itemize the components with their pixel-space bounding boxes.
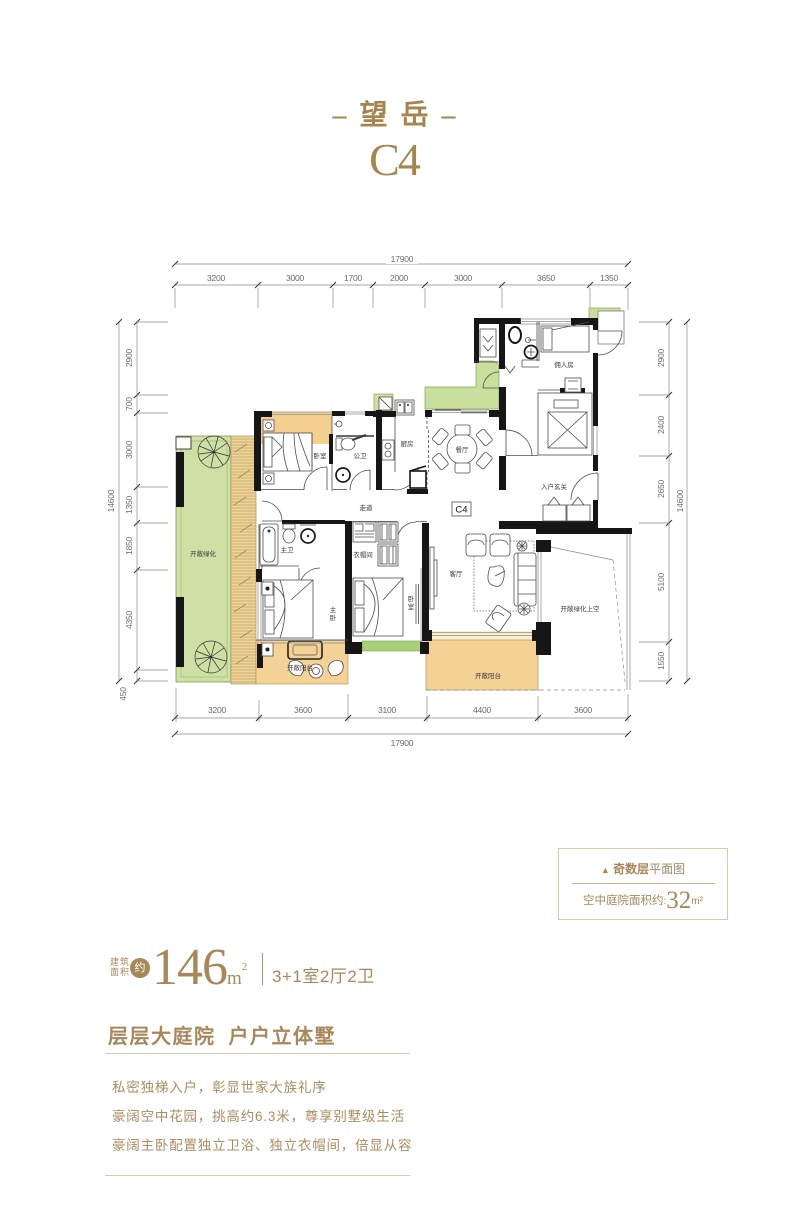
svg-text:衣帽间: 衣帽间 [353,550,373,559]
svg-text:开敞阳台: 开敞阳台 [287,663,313,672]
svg-text:3100: 3100 [378,705,397,715]
svg-text:室: 室 [408,602,415,611]
svg-text:开敞阳台: 开敞阳台 [475,671,501,680]
svg-text:3600: 3600 [574,705,593,715]
svg-text:2400: 2400 [656,415,666,434]
svg-text:卧: 卧 [408,595,415,603]
svg-text:公卫: 公卫 [354,452,368,460]
svg-text:1850: 1850 [124,536,134,555]
svg-text:1700: 1700 [344,273,363,283]
svg-text:C4: C4 [455,505,467,516]
svg-text:3650: 3650 [537,273,556,283]
svg-text:2650: 2650 [656,479,666,498]
svg-text:厨房: 厨房 [401,439,414,448]
svg-text:1550: 1550 [656,651,666,670]
svg-text:主: 主 [330,605,337,614]
svg-text:17900: 17900 [391,738,414,748]
svg-text:4350: 4350 [124,610,134,629]
svg-text:450: 450 [118,687,128,701]
svg-text:卧室: 卧室 [314,451,328,460]
svg-text:开敞绿化: 开敞绿化 [190,549,217,558]
svg-text:3200: 3200 [207,273,226,283]
svg-text:主卫: 主卫 [281,545,295,554]
svg-text:14600: 14600 [106,489,116,512]
svg-text:佣人房: 佣人房 [554,360,574,369]
svg-text:2000: 2000 [390,273,409,283]
svg-text:2900: 2900 [124,348,134,367]
svg-text:3200: 3200 [208,705,227,715]
svg-text:2900: 2900 [656,348,666,367]
svg-text:4400: 4400 [473,705,492,715]
svg-text:3000: 3000 [454,273,473,283]
svg-text:走道: 走道 [360,503,374,512]
svg-text:700: 700 [124,397,134,411]
svg-text:17900: 17900 [391,254,414,264]
svg-text:1350: 1350 [124,495,134,514]
svg-text:客厅: 客厅 [450,569,464,578]
svg-text:卧: 卧 [330,614,337,622]
svg-text:开敞绿化上空: 开敞绿化上空 [561,604,601,613]
svg-text:3000: 3000 [124,440,134,459]
svg-text:餐厅: 餐厅 [456,445,470,454]
svg-text:14600: 14600 [675,489,685,512]
svg-text:入户玄关: 入户玄关 [541,482,568,491]
svg-text:3000: 3000 [286,273,305,283]
svg-text:5100: 5100 [656,572,666,591]
svg-text:3600: 3600 [294,705,313,715]
svg-text:1350: 1350 [600,273,619,283]
